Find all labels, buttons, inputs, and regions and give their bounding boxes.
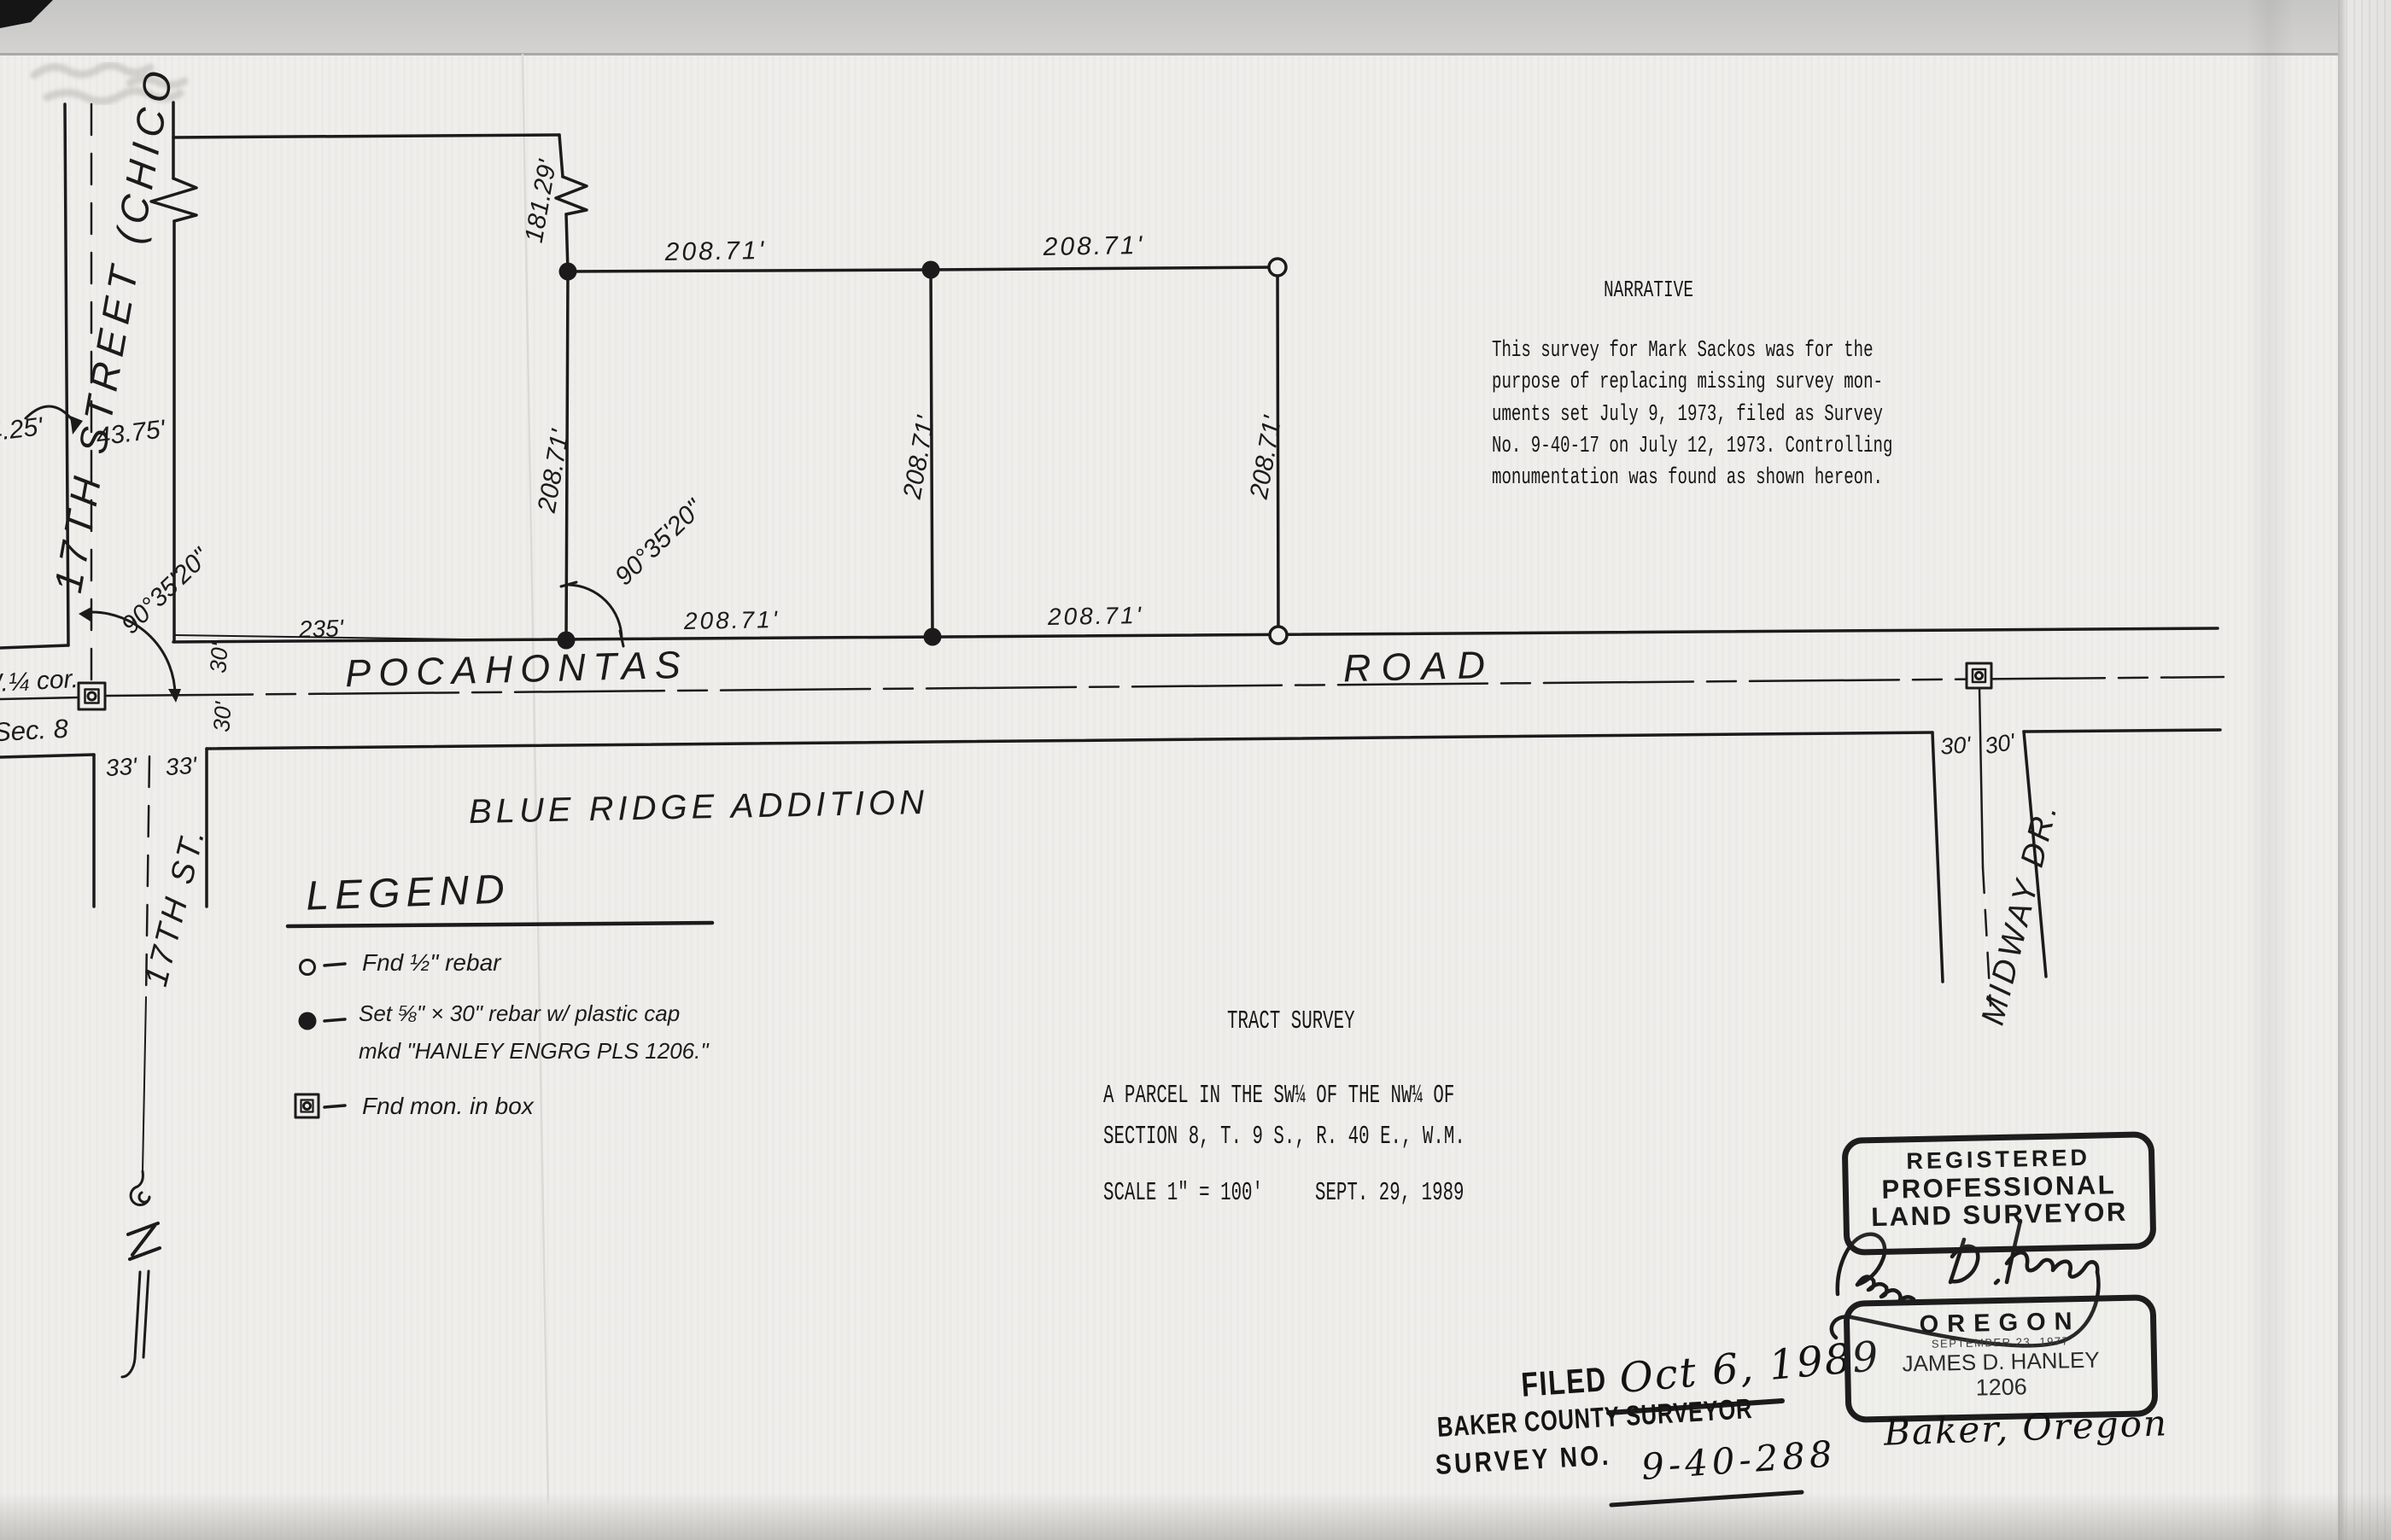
- quarter-corner-label: W.¼ cor.: [0, 665, 79, 699]
- dim-30-south: 30': [208, 701, 237, 732]
- tract-date: SEPT. 29, 1989: [1315, 1178, 1464, 1208]
- legend-item-2-text: Set ⅝" × 30" rebar w/ plastic cap: [359, 1000, 680, 1027]
- dim-208-top-2: 208.71': [1043, 231, 1144, 262]
- narrative-line: monumentation was found as shown hereon.: [1492, 462, 1892, 493]
- dim-208-bottom-1: 208.71': [684, 606, 780, 635]
- section-line-symbol: [122, 1171, 160, 1377]
- dim-208-bottom-2: 208.71': [1048, 602, 1144, 631]
- fold-line: [523, 55, 548, 1502]
- narrative-line: This survey for Mark Sackos was for the: [1492, 335, 1892, 366]
- narrative-line: purpose of replacing missing survey mon-: [1492, 366, 1892, 398]
- dim-30-midway-east: 30': [1983, 729, 2017, 761]
- dim-208-top-1: 208.71': [664, 236, 766, 267]
- monument-box-midway: [1967, 663, 1991, 688]
- dim-30-midway-west: 30': [1939, 732, 1971, 760]
- section-label: Sec. 8: [0, 714, 69, 749]
- filed-label: FILED: [1520, 1361, 1608, 1405]
- road-label-road: ROAD: [1342, 643, 1495, 691]
- stamp-box-title: REGISTERED PROFESSIONAL LAND SURVEYOR: [1842, 1131, 2157, 1256]
- stamp-number: 1206: [1850, 1372, 2152, 1403]
- tract-description-1: A PARCEL IN THE SW¼ OF THE NW¼ OF: [1103, 1081, 1454, 1111]
- legend-underline: [288, 923, 712, 926]
- open-circle-icon: [301, 960, 315, 975]
- pocahontas-road-lines: [0, 628, 2224, 757]
- dim-235: 235': [298, 615, 343, 644]
- tie-line-181: [556, 135, 587, 271]
- monument-box-icon: [295, 1094, 319, 1117]
- tract-description-2: SECTION 8, T. 9 S., R. 40 E., W.M.: [1103, 1122, 1465, 1152]
- dim-33-east: 33': [165, 752, 198, 781]
- monument-box-17th: [79, 683, 105, 709]
- legend-item-2-text2: mkd "HANLEY ENGRG PLS 1206.": [359, 1038, 709, 1065]
- road-label-pocahontas: POCAHONTAS: [345, 643, 689, 696]
- tract-title: TRACT SURVEY: [1227, 1006, 1355, 1036]
- legend-dashes: [324, 964, 345, 1107]
- narrative-line: No. 9-40-17 on July 12, 1973. Controllin…: [1492, 430, 1892, 462]
- set-rebar-points: [558, 261, 942, 650]
- legend-title: LEGEND: [305, 866, 511, 919]
- narrative-line: uments set July 9, 1973, filed as Survey: [1492, 399, 1892, 430]
- filled-circle-icon: [299, 1012, 317, 1030]
- legend-item-1-text: Fnd ½" rebar: [362, 949, 500, 977]
- narrative-title: NARRATIVE: [1604, 278, 1693, 304]
- narrative-body: This survey for Mark Sackos was for the …: [1492, 335, 1892, 493]
- tract-scale: SCALE 1" = 100': [1103, 1178, 1263, 1208]
- dim-33-west: 33': [105, 753, 138, 782]
- survey-document-scan: 17TH STREET (CHICO 17TH ST. MIDWAY DR. P…: [0, 0, 2391, 1540]
- dim-30-north: 30': [205, 642, 233, 674]
- scan-corner-artifact: [0, 0, 53, 28]
- stamp-land-surveyor: LAND SURVEYOR: [1849, 1198, 2150, 1231]
- legend-item-3-text: Fnd mon. in box: [362, 1093, 534, 1120]
